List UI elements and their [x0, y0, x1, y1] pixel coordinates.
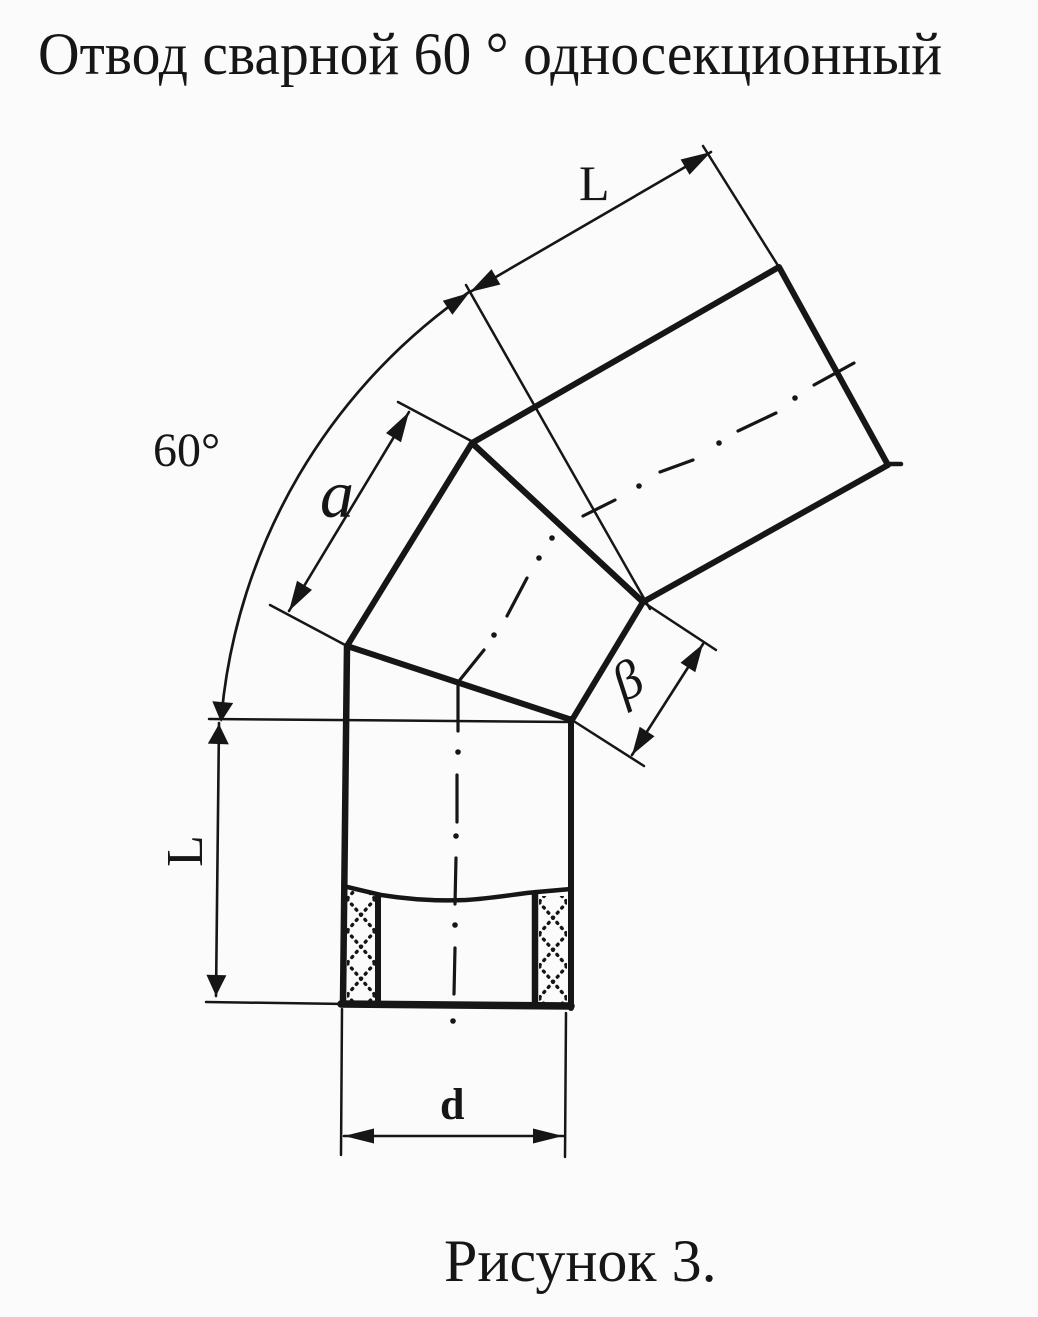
svg-text:a: a [320, 456, 354, 532]
svg-text:L: L [579, 155, 610, 211]
svg-text:L: L [157, 835, 214, 867]
svg-text:β: β [600, 648, 653, 714]
svg-text:60°: 60° [153, 424, 220, 477]
svg-text:d: d [440, 1080, 464, 1129]
